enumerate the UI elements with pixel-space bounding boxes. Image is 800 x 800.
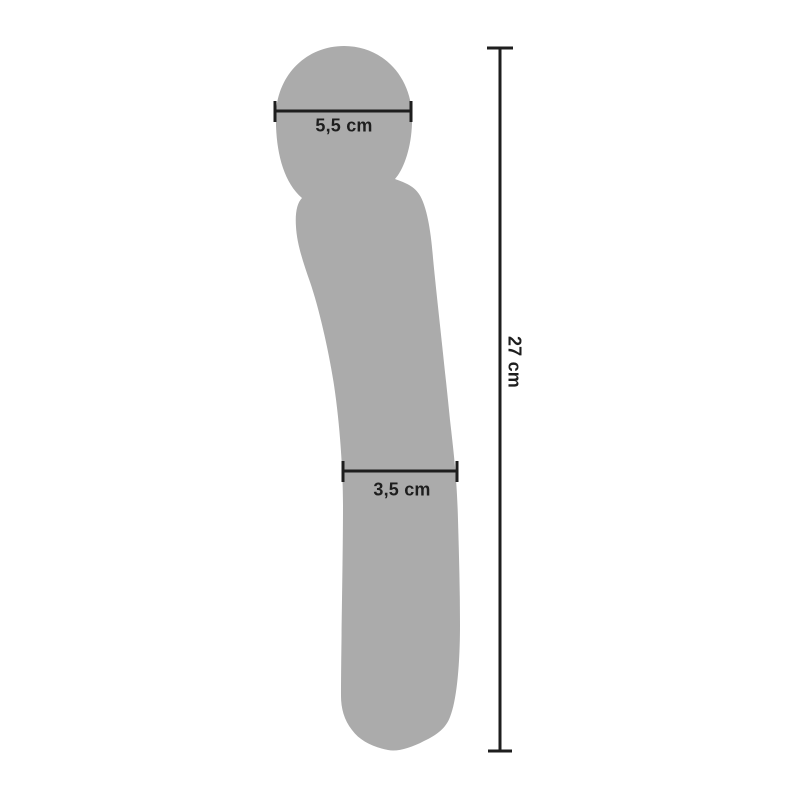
shaft-width-label: 3,5 cm	[373, 480, 430, 501]
diagram-canvas	[0, 0, 800, 800]
product-silhouette	[276, 46, 460, 751]
length-measure	[487, 48, 513, 751]
head-width-label: 5,5 cm	[315, 116, 372, 137]
dimension-diagram: 5,5 cm 3,5 cm 27 cm	[0, 0, 800, 800]
total-length-label: 27 cm	[504, 336, 525, 388]
